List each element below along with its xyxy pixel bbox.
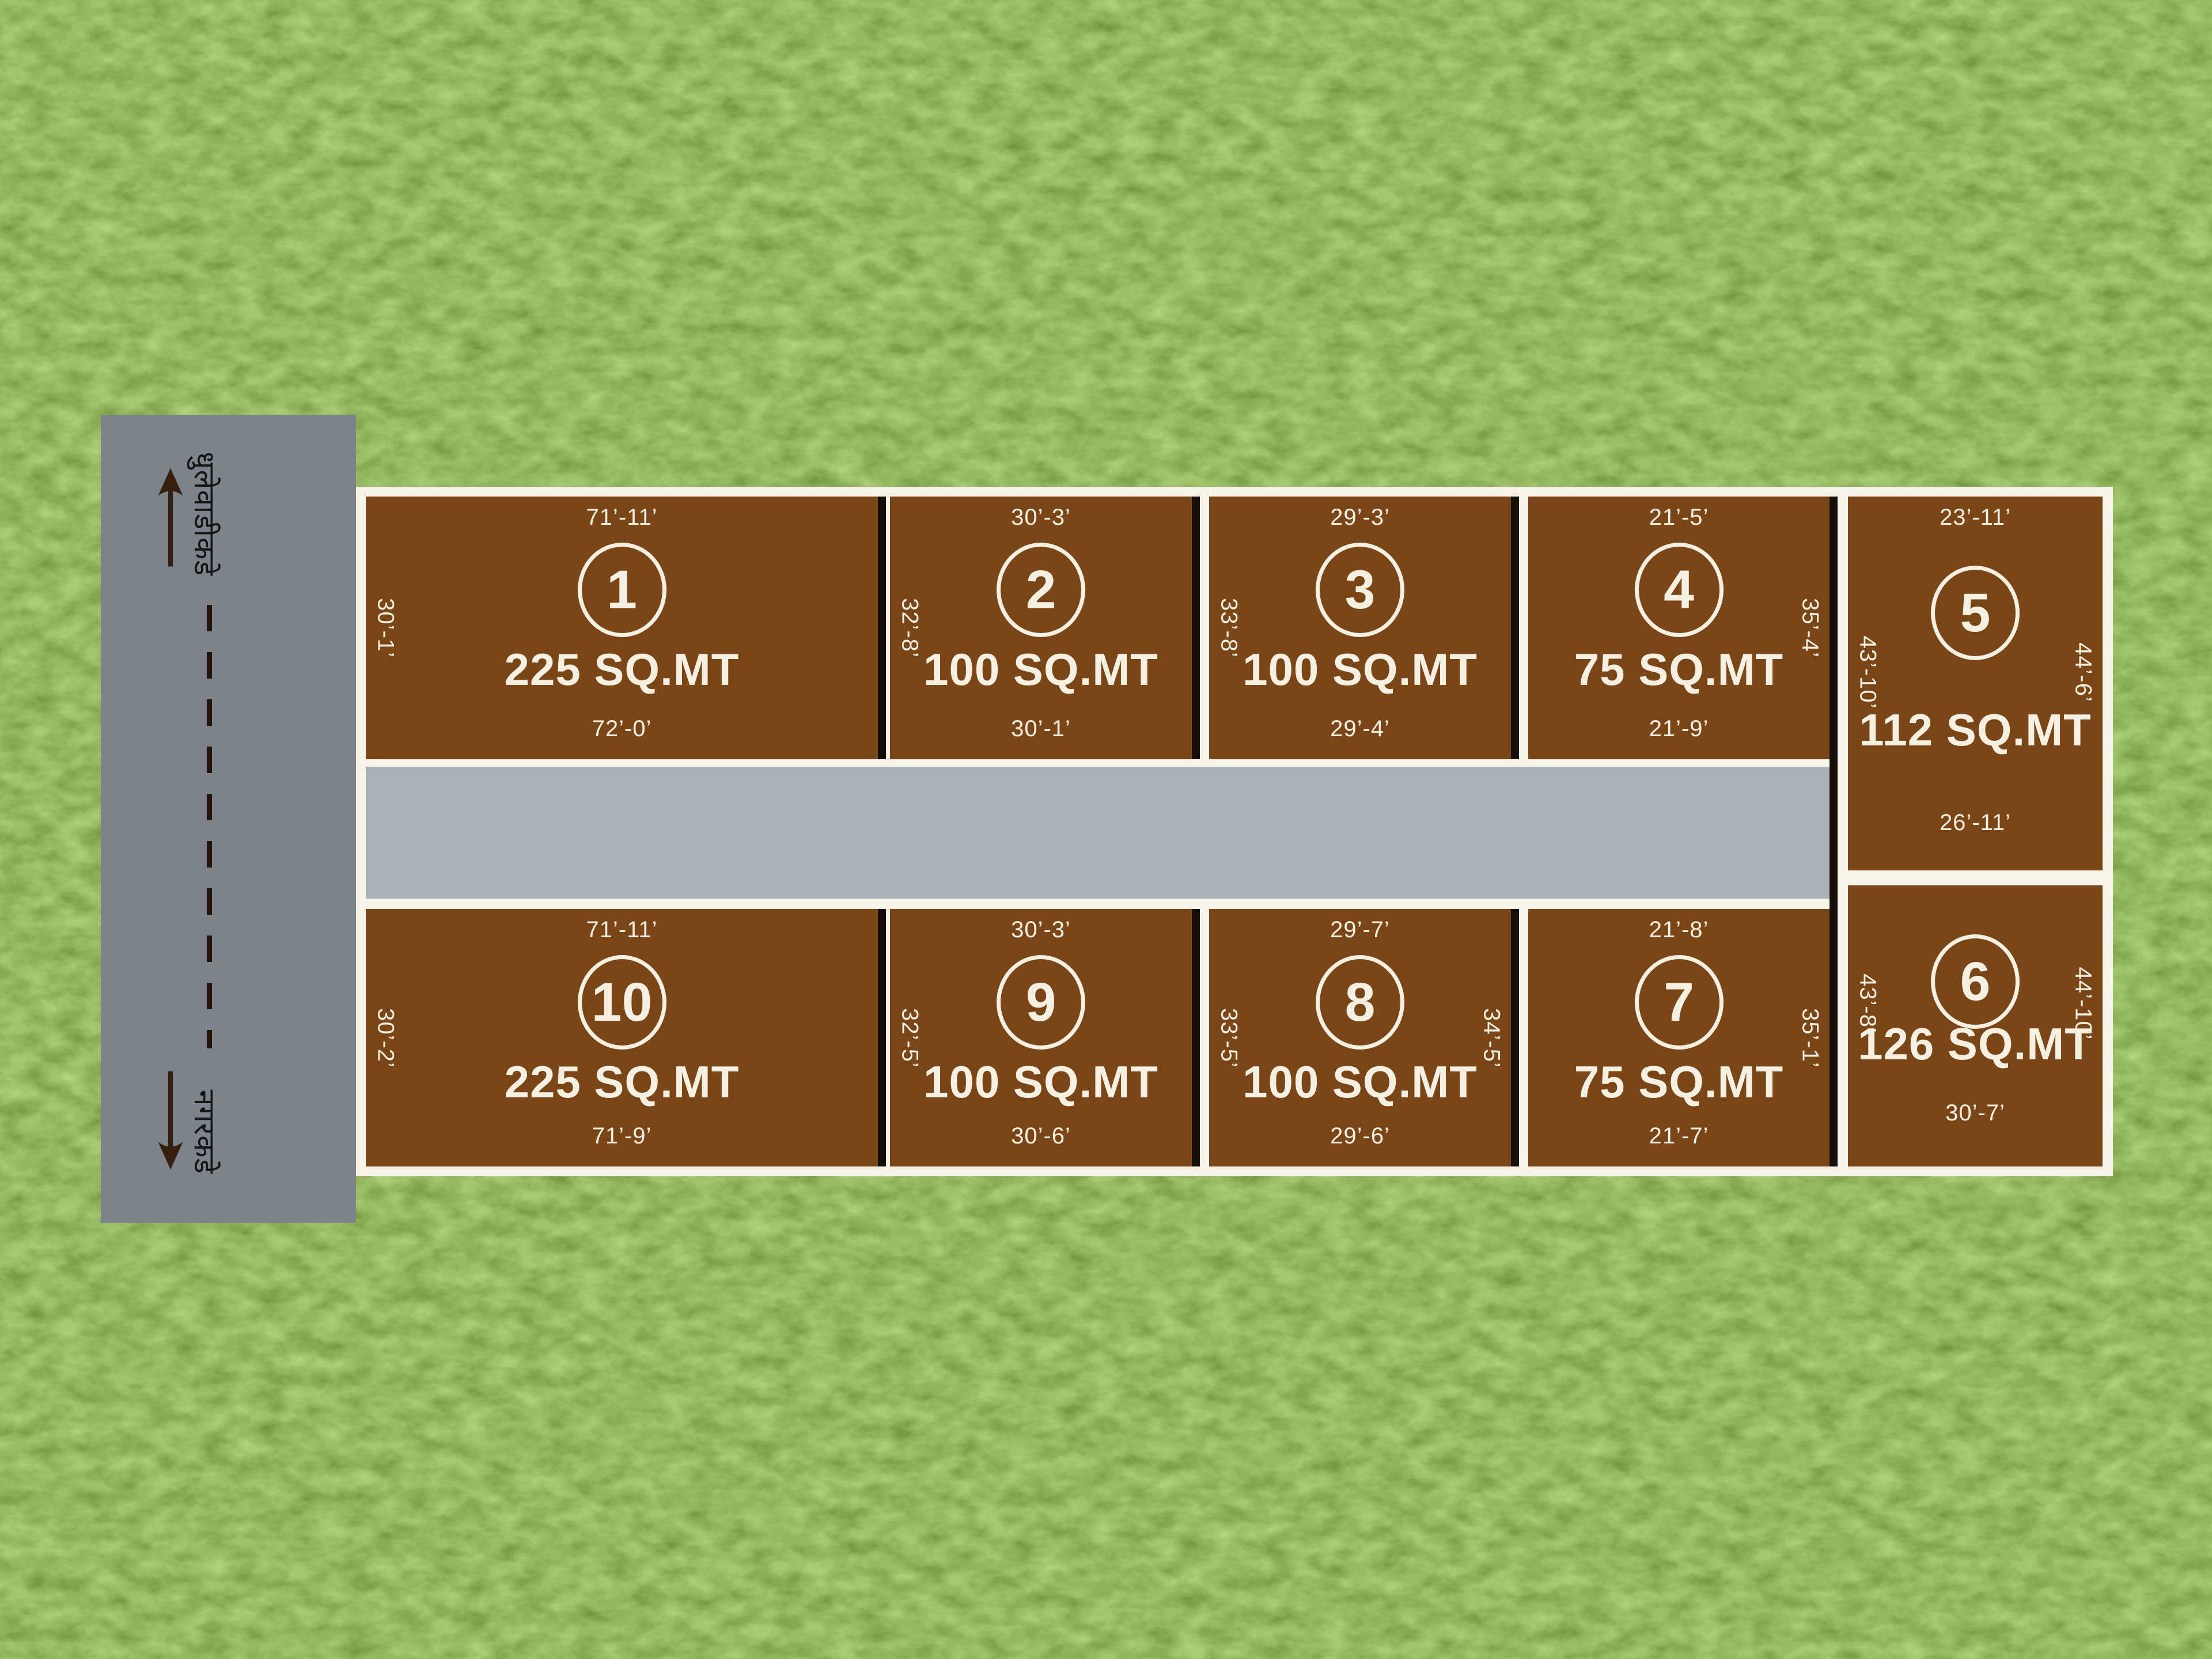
up-arrow-icon	[154, 460, 187, 575]
plot-10-number-badge: 10	[578, 955, 666, 1050]
plot-4-bottom-dimension: 21’-9’	[1528, 716, 1830, 742]
plot-6-bottom-dimension: 30’-7’	[1848, 1100, 2103, 1126]
plot-2: 30’-3’ 32’-8’ 2 100 SQ.MT 30’-1’	[890, 497, 1192, 759]
plot-2-top-dimension: 30’-3’	[890, 505, 1192, 531]
plot-5-right-dimension: 44’-6’	[2070, 642, 2096, 702]
plot-3-bottom-dimension: 29’-4’	[1209, 716, 1511, 742]
plot-8: 29’-7’ 33’-5’ 34’-5’ 8 100 SQ.MT 29’-6’	[1209, 909, 1511, 1166]
plot-1: 71’-11’ 30’-1’ 1 225 SQ.MT 72’-0’	[366, 497, 878, 759]
plot-1-number-badge: 1	[578, 543, 666, 637]
plot-2-number-badge: 2	[997, 543, 1085, 637]
left-road: धुलेवाडीकडे नगरकडे	[101, 415, 356, 1223]
plot-divider-line	[878, 497, 886, 759]
plot-7-bottom-dimension: 21’-7’	[1528, 1123, 1830, 1149]
plot-5-number-badge: 5	[1931, 566, 2020, 660]
plot-7-area: 75 SQ.MT	[1528, 1056, 1830, 1108]
plot-9-top-dimension: 30’-3’	[890, 917, 1192, 943]
plot-layout-block: 71’-11’ 30’-1’ 1 225 SQ.MT 72’-0’ 30’-3’…	[356, 487, 2113, 1176]
plot-1-area: 225 SQ.MT	[366, 643, 878, 696]
plot-8-top-dimension: 29’-7’	[1209, 917, 1511, 943]
plot-4-number-badge: 4	[1635, 543, 1724, 637]
plot-9-area: 100 SQ.MT	[890, 1056, 1192, 1108]
plot-10-bottom-dimension: 71’-9’	[366, 1123, 878, 1149]
plot-7-top-dimension: 21’-8’	[1528, 917, 1830, 943]
plot-10: 71’-11’ 30’-2’ 10 225 SQ.MT 71’-9’	[366, 909, 878, 1166]
plot-6: 43’-8’ 44’-10’ 6 126 SQ.MT 30’-7’	[1848, 885, 2103, 1166]
plot-8-number-badge: 8	[1316, 955, 1404, 1050]
plot-4-area: 75 SQ.MT	[1528, 643, 1830, 696]
down-arrow-icon	[154, 1063, 187, 1178]
plot-6-area: 126 SQ.MT	[1848, 1018, 2103, 1070]
plot-divider-line	[1511, 909, 1519, 1166]
plot-1-bottom-dimension: 72’-0’	[366, 716, 878, 742]
plot-2-bottom-dimension: 30’-1’	[890, 716, 1192, 742]
plot-5: 23’-11’ 43’-10’ 44’-6’ 5 112 SQ.MT 26’-1…	[1848, 497, 2103, 870]
plot-9-bottom-dimension: 30’-6’	[890, 1123, 1192, 1149]
internal-road	[366, 767, 1830, 899]
plot-3-number-badge: 3	[1316, 543, 1404, 637]
road-center-dashed-line	[207, 605, 212, 1048]
plot-2-area: 100 SQ.MT	[890, 643, 1192, 696]
plot-5-top-dimension: 23’-11’	[1848, 505, 2103, 531]
plot-4: 21’-5’ 35’-4’ 4 75 SQ.MT 21’-9’	[1528, 497, 1830, 759]
plot-9: 30’-3’ 32’-5’ 9 100 SQ.MT 30’-6’	[890, 909, 1192, 1166]
plot-8-bottom-dimension: 29’-6’	[1209, 1123, 1511, 1149]
plot-divider-line	[1192, 497, 1200, 759]
road-direction-top-label: धुलेवाडीकडे	[186, 452, 225, 576]
plot-10-top-dimension: 71’-11’	[366, 917, 878, 943]
plot-3-area: 100 SQ.MT	[1209, 643, 1511, 696]
plot-5-left-dimension: 43’-10’	[1855, 635, 1881, 709]
plot-9-number-badge: 9	[997, 955, 1085, 1050]
plot-1-top-dimension: 71’-11’	[366, 505, 878, 531]
plot-7-number-badge: 7	[1635, 955, 1724, 1050]
plot-divider-line	[878, 909, 886, 1166]
plot-8-area: 100 SQ.MT	[1209, 1056, 1511, 1108]
plot-5-area: 112 SQ.MT	[1848, 704, 2103, 756]
plot-4-top-dimension: 21’-5’	[1528, 505, 1830, 531]
plot-10-area: 225 SQ.MT	[366, 1056, 878, 1108]
plot-5-bottom-dimension: 26’-11’	[1848, 810, 2103, 836]
road-direction-bottom-label: नगरकडे	[186, 1090, 225, 1175]
plot-divider-line	[1192, 909, 1200, 1166]
plot-3-top-dimension: 29’-3’	[1209, 505, 1511, 531]
plot-divider-line	[1511, 497, 1519, 759]
plot-7: 21’-8’ 35’-1’ 7 75 SQ.MT 21’-7’	[1528, 909, 1830, 1166]
plot-6-number-badge: 6	[1931, 934, 2020, 1029]
plot-divider-line	[1830, 497, 1838, 1166]
site-plan: धुलेवाडीकडे नगरकडे 71’-11’ 30’-1’ 1 225 …	[0, 0, 2212, 1659]
plot-3: 29’-3’ 33’-8’ 3 100 SQ.MT 29’-4’	[1209, 497, 1511, 759]
